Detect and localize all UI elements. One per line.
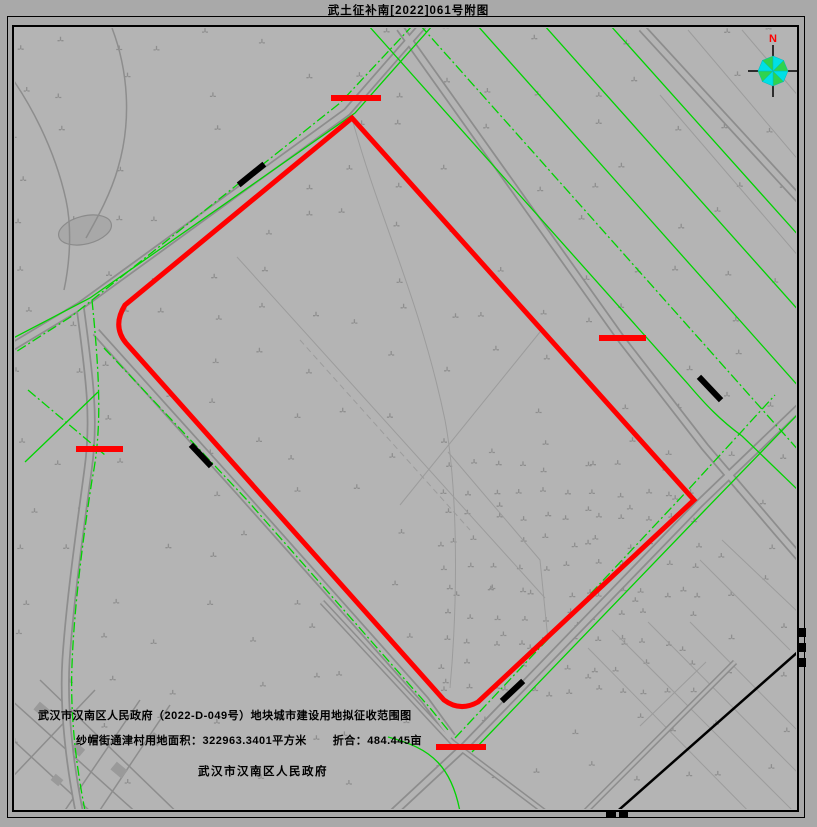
caption-area-line: 纱帽街通津村用地面积：322963.3401平方米折合：484.445亩 bbox=[76, 732, 422, 748]
roads-layer bbox=[0, 25, 800, 825]
frame-tick-marks bbox=[606, 628, 806, 818]
map-canvas[interactable]: N bbox=[0, 0, 817, 827]
railway-diagonal bbox=[612, 650, 800, 816]
cad-map-page: { "title": "武土征补南[2022]061号附图", "caption… bbox=[0, 0, 817, 827]
compass-north-label: N bbox=[769, 33, 777, 45]
field-lines-layer bbox=[0, 28, 800, 825]
pond bbox=[55, 210, 114, 250]
caption-conversion-value: 折合：484.445亩 bbox=[333, 735, 422, 747]
caption-title-line: 武汉市汉南区人民政府（2022-D-049号）地块城市建设用地拟征收范围图 bbox=[38, 707, 412, 723]
caption-government: 武汉市汉南区人民政府 bbox=[198, 763, 328, 779]
bridge-markers bbox=[193, 166, 719, 699]
green-lines-layer bbox=[0, 25, 800, 825]
parcel-boundary[interactable] bbox=[119, 118, 694, 707]
caption-area-value: 纱帽街通津村用地面积：322963.3401平方米 bbox=[76, 735, 307, 747]
